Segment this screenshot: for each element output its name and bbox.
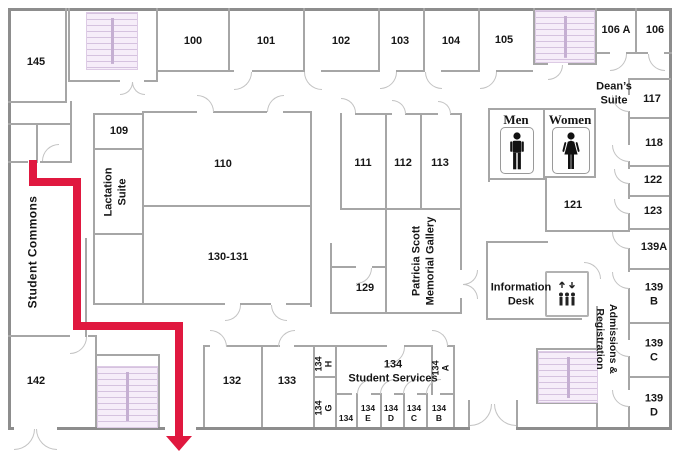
- room-label-134e: 134 E: [361, 404, 375, 424]
- door-arc: [197, 95, 214, 112]
- wall: [8, 8, 11, 430]
- door-arc: [432, 330, 448, 346]
- wall: [335, 393, 352, 395]
- room-label-deans-suite: Dean’s Suite: [596, 80, 632, 108]
- wall: [450, 113, 460, 115]
- wall: [516, 427, 672, 430]
- door-arc: [14, 429, 35, 450]
- wall: [93, 113, 142, 115]
- wall: [630, 165, 669, 167]
- wall: [8, 161, 28, 163]
- door-arc: [438, 101, 451, 114]
- door-arc: [380, 72, 397, 89]
- room-label-113: 113: [431, 157, 449, 171]
- room-label-103: 103: [391, 35, 409, 49]
- room-label-109: 109: [110, 125, 128, 139]
- door-arc: [132, 82, 145, 95]
- door-arc: [612, 272, 629, 289]
- room-label-139b: 139 B: [641, 281, 667, 309]
- room-label-123: 123: [644, 205, 662, 219]
- door-arc: [267, 95, 284, 112]
- door-arc: [271, 305, 287, 321]
- route-segment: [73, 178, 81, 330]
- wall: [310, 111, 312, 307]
- wall: [36, 123, 38, 163]
- wall: [403, 393, 405, 427]
- wall: [630, 322, 669, 324]
- wall: [196, 427, 470, 430]
- wall: [486, 241, 548, 243]
- wall: [203, 345, 205, 427]
- door-arc: [614, 169, 629, 184]
- wall: [93, 113, 95, 235]
- route-arrowhead: [166, 436, 192, 451]
- wall: [420, 113, 422, 208]
- room-label-139a: 139A: [641, 241, 667, 255]
- wall: [626, 52, 648, 54]
- wall: [95, 354, 160, 356]
- wall: [396, 70, 425, 72]
- stairs-area: [97, 366, 158, 428]
- wall: [228, 8, 230, 70]
- wall: [595, 8, 597, 65]
- wall: [453, 345, 455, 427]
- elevator-icon: [553, 279, 581, 309]
- wall: [635, 8, 637, 52]
- wall: [385, 113, 387, 208]
- room-label-information-desk: Information Desk: [491, 281, 552, 309]
- wall: [630, 78, 671, 80]
- wall: [630, 228, 669, 230]
- door-arc: [341, 98, 356, 113]
- wall: [313, 376, 335, 378]
- room-label-134b: 134 B: [432, 404, 446, 424]
- room-label-133: 133: [278, 375, 296, 389]
- wall: [158, 70, 234, 72]
- wall: [441, 70, 480, 72]
- door-arc: [612, 232, 629, 249]
- room-label-134: 134: [339, 414, 353, 424]
- stairs-area: [535, 10, 595, 63]
- wall: [460, 113, 462, 270]
- wall: [93, 233, 142, 235]
- wall: [8, 123, 72, 125]
- room-label-134h: 134 H: [314, 356, 335, 371]
- room-label-134a: 134 A: [431, 360, 452, 375]
- wall: [488, 178, 545, 180]
- wall: [355, 113, 392, 115]
- room-label-lactation-suite: Lactation Suite: [102, 168, 130, 217]
- room-label-men: Men: [503, 112, 528, 128]
- wall: [68, 80, 120, 82]
- wall: [340, 113, 342, 210]
- wall: [144, 205, 310, 207]
- wall: [486, 318, 582, 320]
- women-restroom-sign: [552, 127, 590, 174]
- wall: [356, 393, 358, 427]
- door-arc: [42, 144, 59, 161]
- room-label-106a: 106 A: [602, 24, 631, 38]
- wall: [630, 376, 669, 378]
- wall: [294, 345, 387, 347]
- room-label-117: 117: [643, 93, 661, 107]
- wall: [568, 63, 597, 65]
- wall: [533, 63, 548, 65]
- wall: [478, 8, 480, 70]
- room-label-111: 111: [354, 157, 371, 171]
- door-arc: [463, 284, 478, 299]
- wall: [68, 8, 70, 82]
- room-label-134g: 134 G: [314, 400, 335, 415]
- door-arc: [234, 72, 252, 90]
- door-arc: [278, 330, 295, 347]
- room-label-142: 142: [27, 375, 45, 389]
- room-label-admissions-registration: Admissions & Registration: [593, 304, 619, 374]
- stairs-area: [86, 12, 138, 70]
- door-arc: [494, 404, 516, 426]
- wall: [628, 356, 630, 390]
- floor-plan: 145 100 101 102 103 104 105 106 A 106 De…: [0, 0, 680, 452]
- wall: [516, 400, 518, 427]
- wall: [380, 393, 382, 427]
- room-label-139c: 139 C: [641, 337, 667, 365]
- room-label-110: 110: [214, 158, 232, 172]
- wall: [340, 208, 462, 210]
- elevator: [545, 271, 589, 317]
- wall: [335, 345, 337, 427]
- door-arc: [425, 72, 442, 89]
- wall: [283, 111, 310, 113]
- man-icon: [507, 132, 527, 170]
- door-arc: [392, 100, 406, 114]
- wall: [8, 101, 67, 103]
- wall: [594, 108, 596, 178]
- men-restroom-sign: [500, 127, 534, 174]
- door-arc: [463, 270, 478, 285]
- wall: [597, 52, 610, 54]
- room-label-student-commons: Student Commons: [26, 196, 41, 309]
- door-arc: [614, 199, 629, 214]
- wall: [669, 8, 672, 430]
- room-label-122: 122: [644, 174, 662, 188]
- wall: [70, 101, 72, 163]
- wall: [65, 8, 67, 103]
- door-arc: [548, 65, 563, 80]
- stairs-area: [538, 351, 598, 403]
- wall: [543, 110, 545, 180]
- room-label-121: 121: [564, 199, 582, 213]
- wall: [330, 243, 332, 312]
- room-label-134c: 134 C: [407, 404, 421, 424]
- wall: [303, 8, 305, 70]
- wall: [144, 80, 158, 82]
- wall: [203, 345, 210, 347]
- wall: [630, 195, 669, 197]
- wall: [628, 406, 630, 427]
- wall: [93, 235, 95, 305]
- wall: [426, 393, 428, 427]
- room-label-112: 112: [394, 157, 412, 171]
- wall: [628, 288, 630, 340]
- wall: [423, 8, 425, 70]
- route-segment: [73, 322, 183, 330]
- wall: [385, 210, 387, 314]
- door-arc: [480, 72, 497, 89]
- room-label-139d: 139 D: [641, 392, 667, 420]
- wall: [496, 70, 533, 72]
- door-arc: [304, 72, 322, 90]
- room-label-101: 101: [257, 35, 275, 49]
- room-label-118: 118: [645, 137, 663, 151]
- wall: [630, 268, 669, 270]
- door-arc: [120, 82, 133, 95]
- room-label-102: 102: [332, 35, 350, 49]
- wall: [321, 70, 380, 72]
- wall: [545, 176, 547, 232]
- wall: [488, 108, 490, 182]
- wall: [440, 393, 455, 395]
- door-arc: [648, 54, 665, 71]
- wall: [93, 303, 142, 305]
- wall: [332, 266, 356, 268]
- wall: [630, 117, 669, 119]
- wall: [286, 303, 310, 305]
- room-label-women: Women: [549, 112, 592, 128]
- wall: [488, 108, 594, 110]
- wall: [545, 176, 596, 178]
- wall: [240, 303, 271, 305]
- wall: [226, 345, 280, 347]
- wall: [536, 348, 598, 350]
- wall: [486, 241, 488, 320]
- wall: [252, 70, 305, 72]
- room-label-145: 145: [27, 56, 45, 70]
- door-arc: [470, 404, 492, 426]
- wall: [95, 148, 142, 150]
- wall: [144, 111, 197, 113]
- room-label-104: 104: [442, 35, 460, 49]
- room-label-105: 105: [495, 34, 513, 48]
- room-label-130-131: 130-131: [208, 251, 248, 265]
- door-arc: [36, 429, 57, 450]
- wall: [261, 345, 263, 427]
- door-arc: [210, 330, 227, 347]
- wall: [404, 345, 432, 347]
- route-segment: [175, 322, 183, 436]
- wall: [405, 113, 438, 115]
- room-label-134d: 134 D: [384, 404, 398, 424]
- wall: [330, 312, 462, 314]
- wall: [8, 335, 70, 337]
- room-label-129: 129: [356, 282, 374, 296]
- wall: [158, 354, 160, 427]
- wall: [372, 266, 387, 268]
- room-label-134-student-services: 134 Student Services: [348, 358, 437, 386]
- wall: [144, 303, 225, 305]
- door-arc: [612, 145, 629, 162]
- door-arc: [225, 305, 241, 321]
- door-arc: [612, 390, 629, 407]
- wall: [664, 52, 672, 54]
- room-label-100: 100: [184, 35, 202, 49]
- door-arc: [70, 337, 87, 354]
- room-label-132: 132: [223, 375, 241, 389]
- wall: [213, 111, 267, 113]
- room-label-106: 106: [646, 24, 664, 38]
- room-label-gallery: Patricia Scott Memorial Gallery: [410, 217, 438, 306]
- wall: [40, 161, 72, 163]
- wall: [378, 8, 380, 70]
- wall: [142, 111, 144, 305]
- wall: [447, 345, 455, 347]
- woman-icon: [560, 132, 582, 170]
- door-arc: [610, 54, 627, 71]
